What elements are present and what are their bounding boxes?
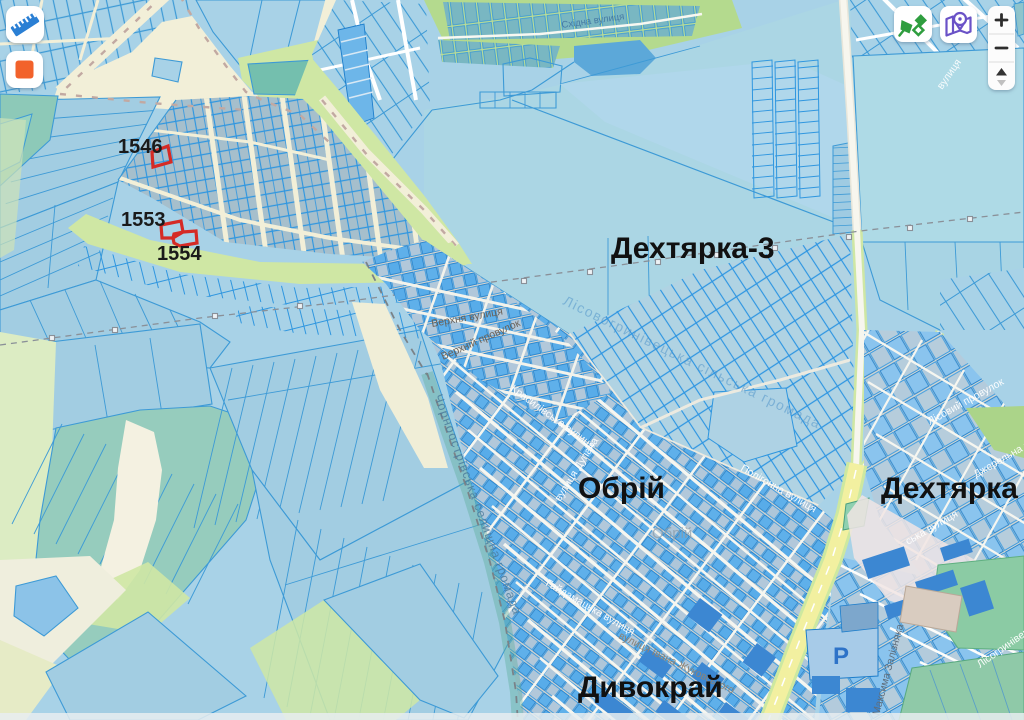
svg-text:Обрій: Обрій	[652, 525, 692, 542]
svg-text:1553: 1553	[121, 209, 166, 231]
svg-text:P: P	[833, 643, 849, 670]
svg-text:1554: 1554	[157, 243, 202, 265]
svg-text:1546: 1546	[118, 136, 163, 158]
svg-text:Обрій: Обрій	[578, 472, 665, 505]
svg-text:Дивокрай: Дивокрай	[578, 671, 723, 704]
svg-text:Дехтярка: Дехтярка	[881, 472, 1018, 505]
svg-text:Дехтярка-3: Дехтярка-3	[611, 232, 775, 265]
